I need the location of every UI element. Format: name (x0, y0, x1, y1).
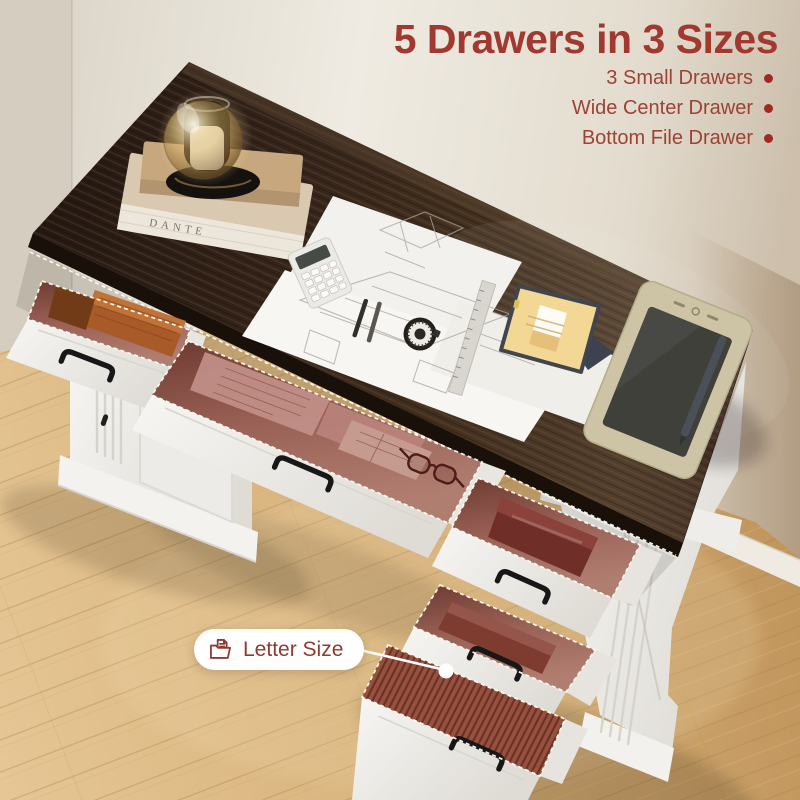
feature-item: 3 Small Drawers (606, 67, 773, 90)
bullet-dot (764, 74, 773, 83)
bullet-dot (764, 134, 773, 143)
bullet-dot (764, 104, 773, 113)
headline-title: 5 Drawers in 3 Sizes (394, 16, 778, 63)
feature-label: 3 Small Drawers (606, 67, 753, 90)
callout-label: Letter Size (243, 638, 343, 662)
feature-label: Wide Center Drawer (572, 97, 753, 120)
feature-item: Bottom File Drawer (582, 127, 773, 150)
feature-list: 3 Small Drawers Wide Center Drawer Botto… (572, 67, 773, 150)
product-marketing-image: DANTE (0, 0, 800, 800)
feature-item: Wide Center Drawer (572, 97, 773, 120)
letter-size-callout: Letter Size (194, 629, 364, 670)
file-folder-icon (207, 636, 234, 663)
feature-label: Bottom File Drawer (582, 127, 753, 150)
